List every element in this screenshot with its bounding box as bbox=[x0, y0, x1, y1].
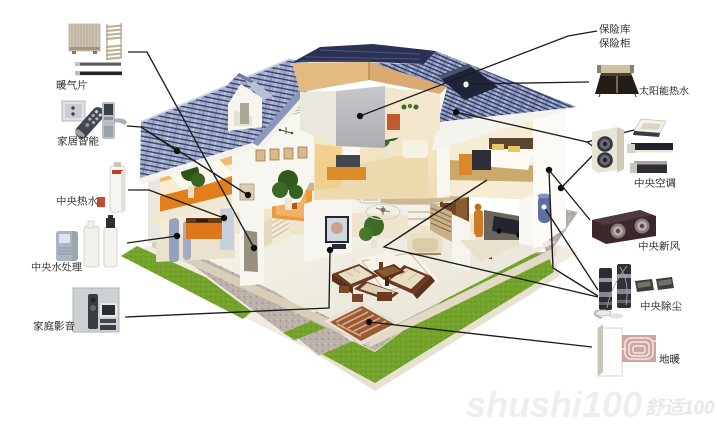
svg-text:舒适100: 舒适100 bbox=[645, 397, 715, 419]
svg-text:shushi100: shushi100 bbox=[466, 384, 642, 425]
